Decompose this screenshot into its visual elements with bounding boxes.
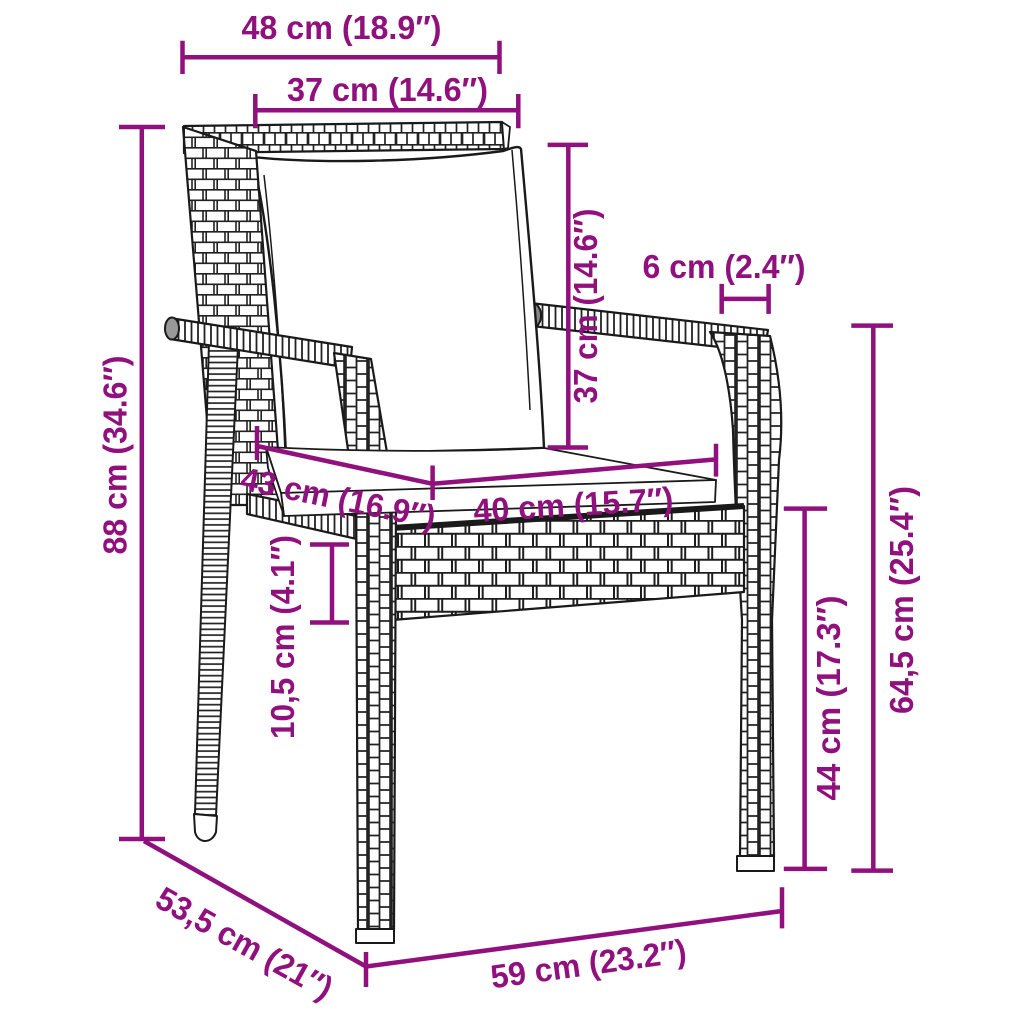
svg-text:37 cm (14.6″): 37 cm (14.6″) (567, 209, 604, 404)
svg-text:6 cm (2.4″): 6 cm (2.4″) (643, 248, 806, 285)
svg-text:10,5 cm (4.1″): 10,5 cm (4.1″) (264, 535, 301, 739)
svg-text:48 cm (18.9″): 48 cm (18.9″) (242, 9, 442, 46)
svg-text:64,5 cm (25.4″): 64,5 cm (25.4″) (883, 486, 920, 714)
svg-text:59 cm (23.2″): 59 cm (23.2″) (488, 932, 688, 995)
svg-text:44 cm (17.3″): 44 cm (17.3″) (810, 596, 847, 801)
svg-text:37 cm (14.6″): 37 cm (14.6″) (287, 71, 488, 108)
svg-text:88 cm (34.6″): 88 cm (34.6″) (97, 356, 134, 555)
